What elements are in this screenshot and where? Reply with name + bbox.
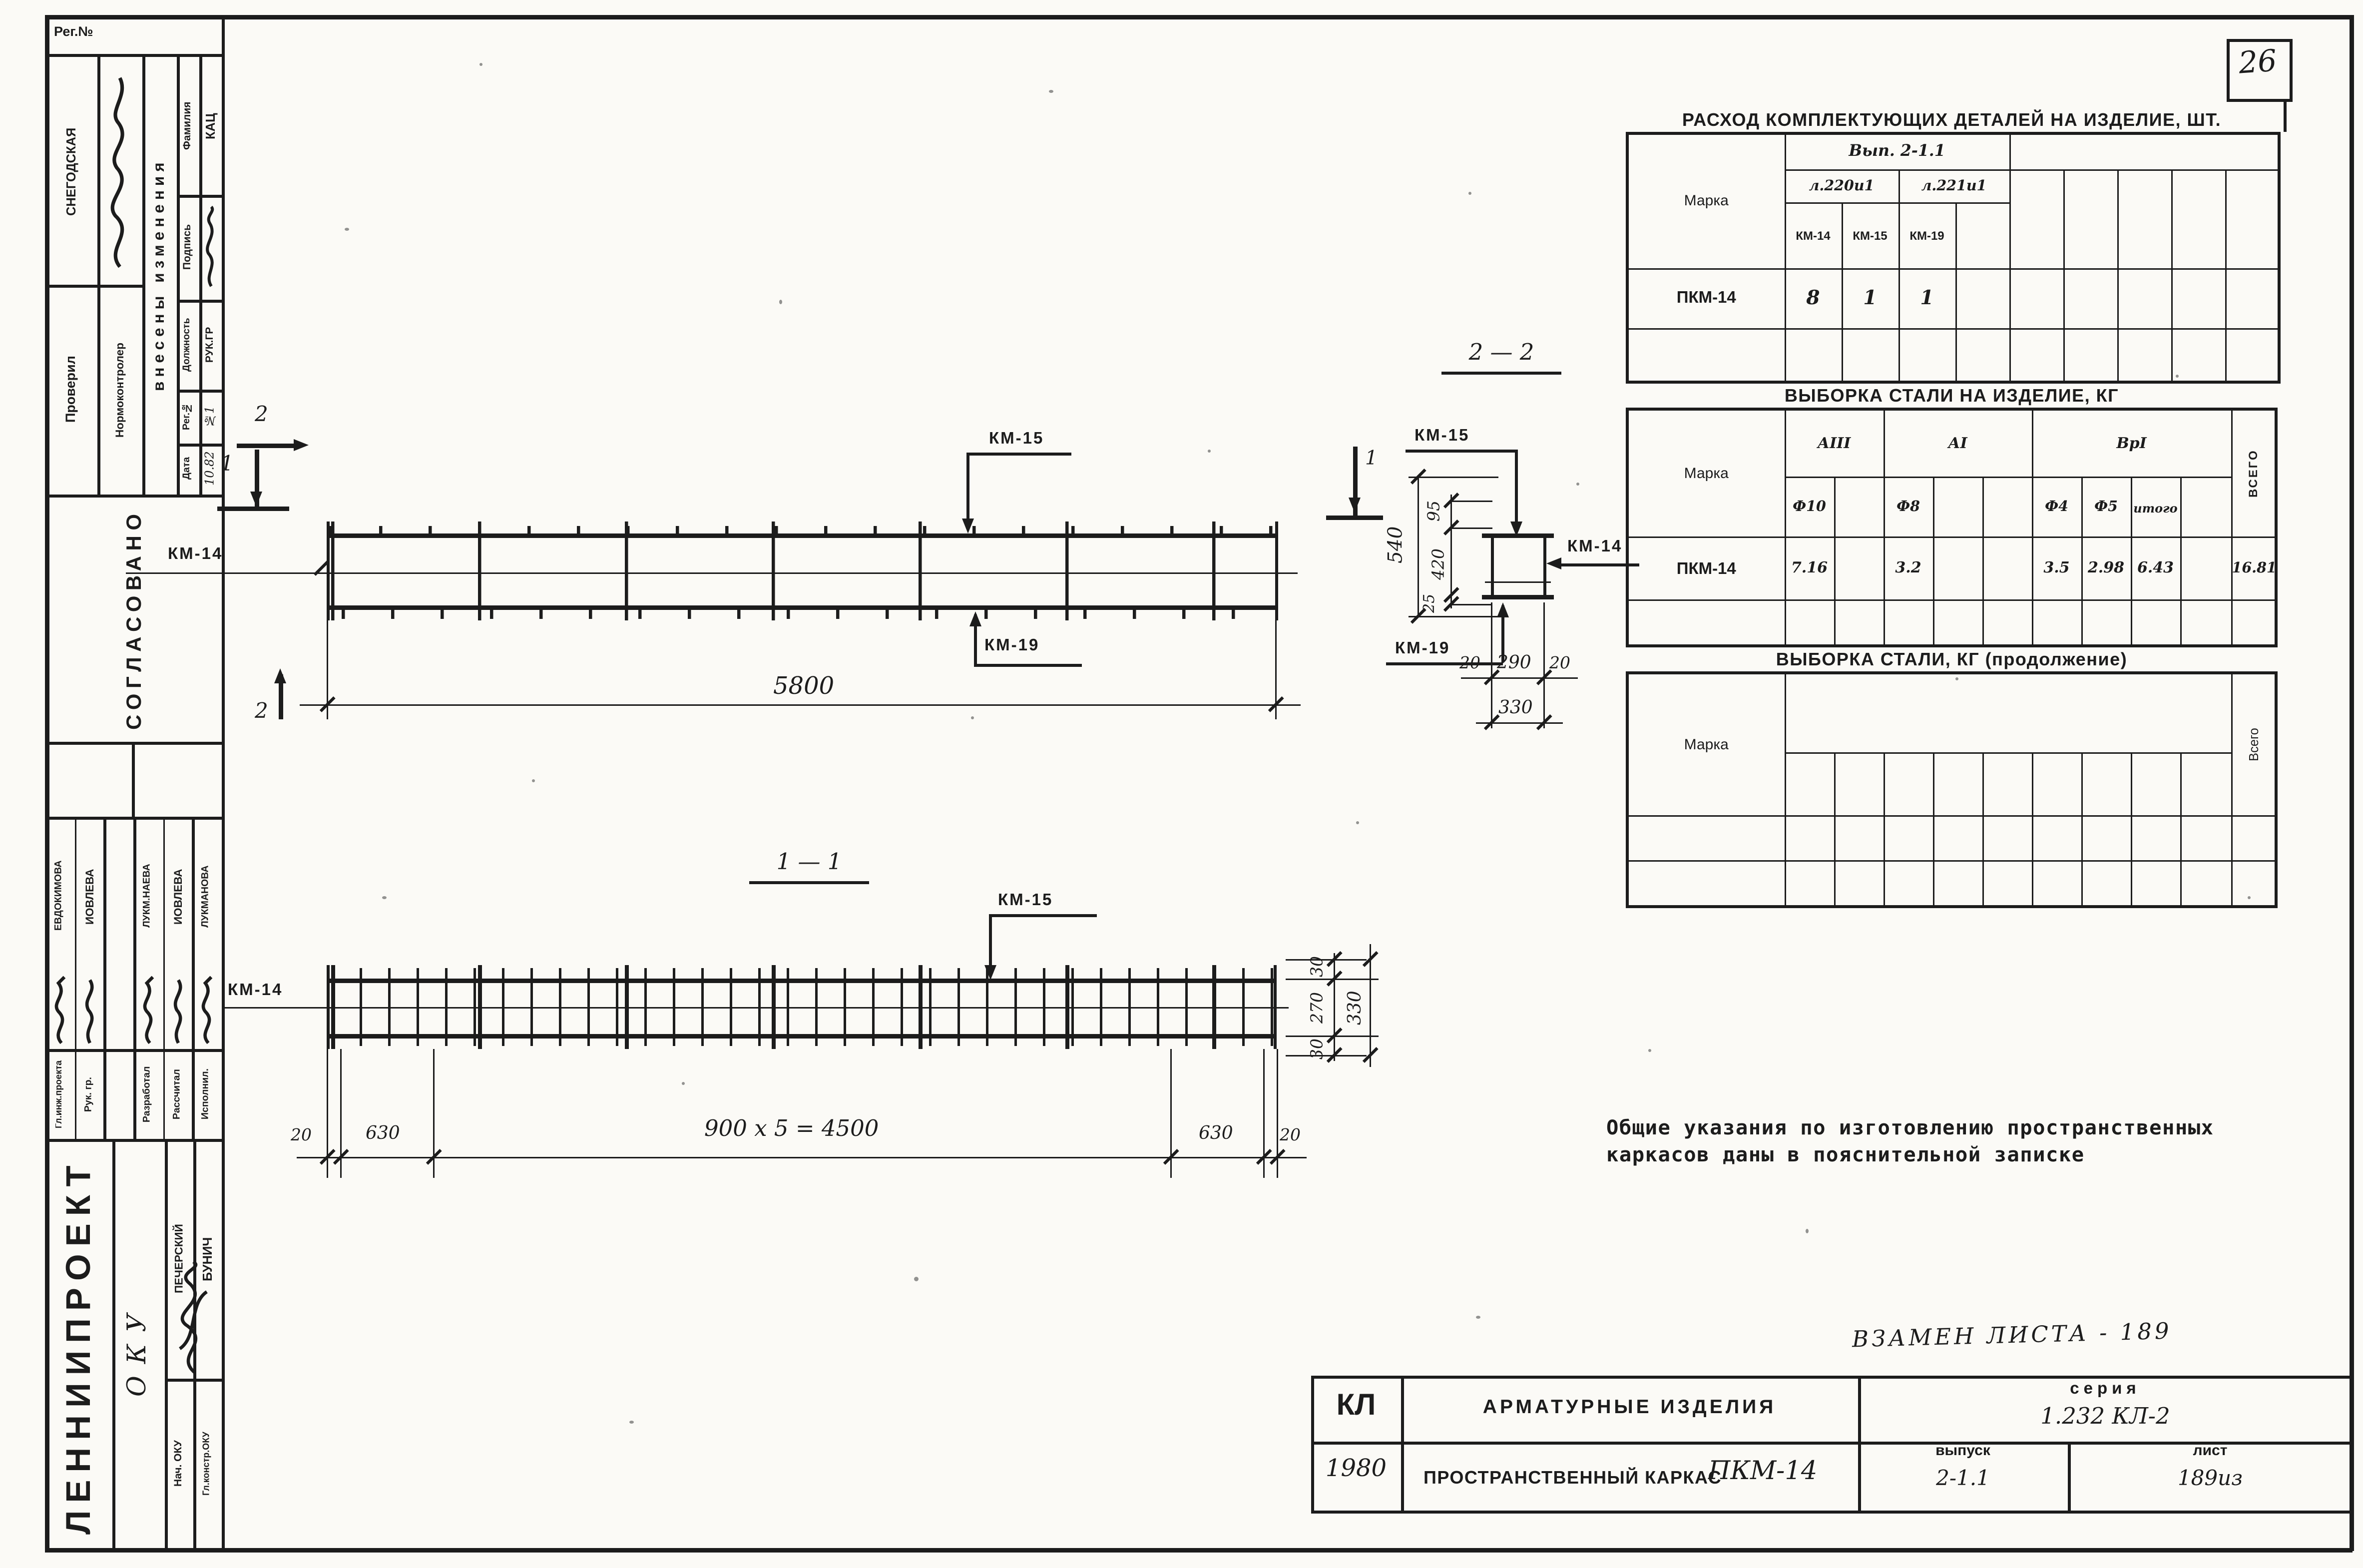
elev-km15-leader [989,914,1097,917]
sheet-number: 26 [2238,45,2278,79]
tb-sheet-label: лист [2068,1445,2353,1461]
sec-mid-wire [1485,581,1551,583]
strip-vline [97,54,100,495]
role-label: Рассчитал [165,1052,192,1136]
sign-label: Подпись [178,198,198,297]
strip-line [177,195,222,197]
frame-right-line [2350,15,2354,1551]
strip-line [165,1379,222,1381]
sec-right-side [1543,533,1546,599]
scanned-sheet: 26 Рег.№ СНЕГОДСКАЯ Проверил Нормоконтро… [0,0,2363,1568]
role-label: Разработал [135,1052,162,1136]
dim-20-left: 20 [291,1127,312,1144]
staff2-role: Гл.констр.ОКУ [195,1385,220,1544]
steel-marka-header: Марка [1627,409,1785,537]
parts-empty-header [2009,133,2279,169]
organization-name: ЛЕННИИПРОЕКТ [45,1146,112,1545]
plan-bottom-chord [327,605,1277,609]
tb-issue-value: 2-1.1 [1858,1469,2068,1491]
dim-420: 420 [1428,536,1449,593]
section1-mark-base [217,507,289,511]
parts-row-marka: ПКМ-14 [1627,268,1785,328]
steel-dia-header: итого [2131,478,2180,537]
signature-scribble [202,204,220,291]
parts-marka-header: Марка [1627,133,1785,268]
signature-scribble [196,974,219,1046]
plan-left-end-bar [327,522,330,620]
signature-scribble [79,974,102,1046]
parts-col-header: КМ-14 [1785,202,1842,268]
sec-left-side [1491,533,1493,599]
steel-value: 2.98 [2081,537,2131,600]
sec-km15-arrow [1510,522,1522,536]
scan-speck [2248,896,2251,899]
strip-line [177,300,222,302]
section2-mark-bottom: 2 [255,701,268,723]
steel-cont-title: ВЫБОРКА СТАЛИ, КГ (продолжение) [1626,650,2278,669]
dim-line-bottom [297,1157,1307,1159]
signature-scribble [49,974,72,1046]
role-label: Гл.инж.проекта [46,1052,73,1136]
steel-dia-header: Ф10 [1785,478,1834,537]
dim-ext-line [1450,604,1492,605]
scan-speck [345,228,349,231]
scan-speck [382,896,387,899]
dim-line-5800 [300,704,1301,706]
dim-ext-line [1450,501,1492,502]
plan-km15-leader [966,453,1071,455]
staff2-role: Нач. ОКУ [166,1385,192,1544]
section1-mark-right-base [1326,516,1383,520]
sec-km14-leader [1555,563,1639,566]
scan-speck [1806,1229,1809,1233]
date-label: Дата [178,445,198,492]
section2-arrow [294,439,309,451]
section2-bottom-arrow [274,668,286,683]
scan-speck [914,1277,919,1281]
dim-540: 540 [1385,504,1409,587]
plan-km19-arrow [969,611,981,626]
position-label: Должность [178,303,198,387]
parts-table: Марка Вып. 2-1.1 л.220и1 л.221и1 КМ-14 К… [1626,132,2281,384]
scan-speck [682,1082,685,1085]
general-note-line1: Общие указания по изготовлению пространс… [1606,1118,2214,1139]
strip-vline [132,742,134,817]
staff-name: ЛУКМАНОВА [193,821,220,971]
elev-bottom-chord [327,1034,1277,1038]
steel-total-value: 16.81 [2231,537,2276,600]
tb-product-code: ПКМ-14 [1708,1460,1817,1487]
normcontrol-label: Нормоконтролер [100,291,139,489]
sec-km19-arrow [1496,602,1508,617]
elev-right-end [1274,965,1277,1049]
dim-20l: 20 [1459,655,1480,672]
plan-km19-leader [974,664,1082,666]
sec-km14-arrow [1546,557,1561,569]
section1-arrow [250,492,262,507]
steel-value: 6.43 [2131,537,2180,600]
strip-line [45,54,222,56]
dim-630-right: 630 [1199,1124,1233,1143]
checked-label: Проверил [48,291,94,489]
reg-number-value: №1 [201,393,220,441]
stamp-strip-divider [222,15,225,1551]
dim-900x5: 900 x 5 = 4500 [704,1118,879,1141]
plan-top-chord [327,533,1277,537]
parts-col-header: КМ-15 [1842,202,1898,268]
sheet-number-box-tail [2284,99,2287,132]
dim-30-bot: 30 [1307,1037,1328,1062]
section1-mark-right: 1 [1365,450,1378,470]
parts-table-title: РАСХОД КОМПЛЕКТУЮЩИХ ДЕТАЛЕЙ НА ИЗДЕЛИЕ,… [1626,111,2278,130]
scan-speck [1208,450,1211,453]
strip-vline [142,54,145,495]
staff-name: ИОВЛЕВА [165,821,192,971]
steel-value: 3.5 [2032,537,2081,600]
elev-km15-arrow [984,965,996,980]
strip-line [45,285,142,287]
sec-km19-label: КМ-19 [1395,641,1450,659]
scan-speck [1476,1316,1480,1319]
plan-right-end-bar [1275,522,1278,620]
family-label: Фамилия [178,60,198,192]
scan-speck [1576,483,1579,486]
steel-table-title: ВЫБОРКА СТАЛИ НА ИЗДЕЛИЕ, КГ [1626,387,2278,406]
tb-year: 1980 [1311,1457,1401,1482]
parts-sheet-header: л.221и1 [1898,169,2009,202]
scan-speck [971,716,974,719]
cont-total-header: Всего [2231,673,2276,816]
dim-330-total: 330 [1343,986,1367,1031]
dim-line-540 [1418,477,1419,616]
sec-km15-label: КМ-15 [1415,429,1469,446]
dim-290: 290 [1497,653,1531,672]
elev-left-end [327,965,330,1049]
checked-name: СНЕГОДСКАЯ [48,63,94,280]
section1-mark-left: 1 [220,454,234,476]
steel-dia-header: Ф4 [2032,478,2081,537]
changes-banner: внесены изменения [145,60,174,489]
elev-km15-label: КМ-15 [998,893,1053,911]
parts-value: 1 [1842,268,1898,328]
sec-km15-leader [1406,450,1516,452]
dim-630-left: 630 [366,1124,400,1143]
tb-product-title: ПРОСТРАНСТВЕННЫЙ КАРКАС [1423,1469,1722,1488]
scan-speck [1356,821,1359,824]
steel-row-marka: ПКМ-14 [1627,537,1785,600]
parts-value: 1 [1898,268,1955,328]
cont-marka-header: Марка [1627,673,1785,816]
tb-sheet-value: 189из [2068,1469,2353,1491]
scan-speck [532,779,535,782]
date-value: 10.82 [201,445,220,492]
dim-ext-line [1543,602,1545,728]
scan-speck [779,300,782,304]
strip-vline [104,817,106,1139]
general-note-line2: каркасов даны в пояснительной записке [1606,1145,2085,1166]
dim-270: 270 [1307,989,1328,1028]
dim-ext-line [1491,602,1492,728]
role-label: Исполнил. [193,1052,220,1136]
scan-speck [1468,192,1471,195]
sec-km19-leader [1386,662,1503,665]
dim-line-290 [1461,677,1578,679]
section22-title: 2 — 2 [1441,342,1561,374]
tb-series-value: 1.232 КЛ-2 [1858,1406,2353,1429]
section2-mark-top: 2 [255,405,268,427]
section1-right-arrow [1349,498,1361,513]
elev-km14-label: КМ-14 [228,983,283,1001]
tb-series-label: серия [1858,1382,2353,1399]
steel-dia-header: Ф8 [1884,478,1933,537]
strip-vline [112,1139,115,1551]
parts-col-header: КМ-19 [1898,202,1955,268]
frame-bottom-line [45,1548,2353,1552]
scan-speck [1049,90,1053,93]
elev-top-chord [327,979,1277,983]
view11-title: 1 — 1 [749,851,869,884]
signature-scribble [168,974,190,1046]
tb-issue-label: выпуск [1858,1445,2068,1461]
sec-km15-leader-v [1515,450,1517,524]
scan-speck [1648,1049,1651,1052]
scan-speck [1955,677,1958,680]
position-value: РУК.ГР [201,303,220,387]
dim-20r: 20 [1549,655,1570,672]
steel-value: 3.2 [1884,537,1933,600]
scan-speck [479,63,482,66]
scan-speck [2176,375,2179,378]
tb-doc-title: АРМАТУРНЫЕ ИЗДЕЛИЯ [1401,1397,1858,1417]
drawing-sheet: 26 Рег.№ СНЕГОДСКАЯ Проверил Нормоконтро… [0,0,2363,1568]
signature-scribble [168,1259,219,1379]
parts-value: 8 [1785,268,1842,328]
steel-cont-table: Марка Всего [1626,671,2278,908]
steel-dia-header: Ф5 [2081,478,2131,537]
sec-km14-label: КМ-14 [1567,539,1622,557]
steel-class-header: АI [1884,409,2032,478]
dim-25: 25 [1420,589,1441,619]
plan-km15-arrow [961,519,973,533]
tb-org-code: КЛ [1311,1391,1401,1422]
steel-table: Марка АIII АI ВрI ВСЕГО Ф10 Ф8 Ф4 Ф5 ито… [1626,408,2278,647]
dim-330: 330 [1498,698,1533,717]
elev-km15-leader-v [989,914,991,971]
parts-issue-header: Вып. 2-1.1 [1785,133,2009,169]
strip-line [45,495,222,497]
plan-km14-label: КМ-14 [168,547,223,564]
staff-name: ЕВДОКИМОВА [46,821,73,971]
signature-scribble [100,72,139,274]
parts-sheet-header: л.220и1 [1785,169,1898,202]
steel-value: 7.16 [1785,537,1834,600]
dim-line-right-total [1370,944,1372,1067]
steel-total-header: ВСЕГО [2231,409,2276,537]
reg-number-label: Рег.№ [178,393,198,441]
dim-ext-line [1450,527,1492,529]
signature-scribble [138,974,160,1046]
strip-line [45,1049,222,1051]
dim-95: 95 [1423,492,1444,530]
scan-speck [629,1421,634,1424]
family-value: КАЦ [201,60,220,192]
dim-ext-line [1409,477,1498,478]
replaces-note: ВЗАМЕН ЛИСТА - 189 [1852,1321,2172,1353]
role-label: Рук. гр. [76,1052,103,1136]
dim-5800: 5800 [773,674,834,699]
strip-line [177,390,222,392]
staff-name: ИОВЛЕВА [76,821,103,971]
staff-name: ЛУКМ.НАЕВА [135,821,162,971]
reg-label: Рег.№ [54,25,93,39]
steel-class-header: АIII [1785,409,1884,478]
dim-20-right: 20 [1280,1127,1301,1144]
frame-top-line [45,15,2353,19]
section2-mark-line [237,444,294,448]
plan-km15-leader-v [966,453,969,522]
dim-line-right-chain [1334,953,1336,1061]
org-unit-handwritten: ОКУ [115,1266,162,1431]
plan-km19-label: КМ-19 [984,638,1039,656]
steel-class-header: ВрI [2032,409,2231,478]
agreed-banner: СОГЛАСОВАНО [45,501,222,737]
plan-km15-label: КМ-15 [989,432,1044,449]
dim-30-top: 30 [1307,955,1328,980]
